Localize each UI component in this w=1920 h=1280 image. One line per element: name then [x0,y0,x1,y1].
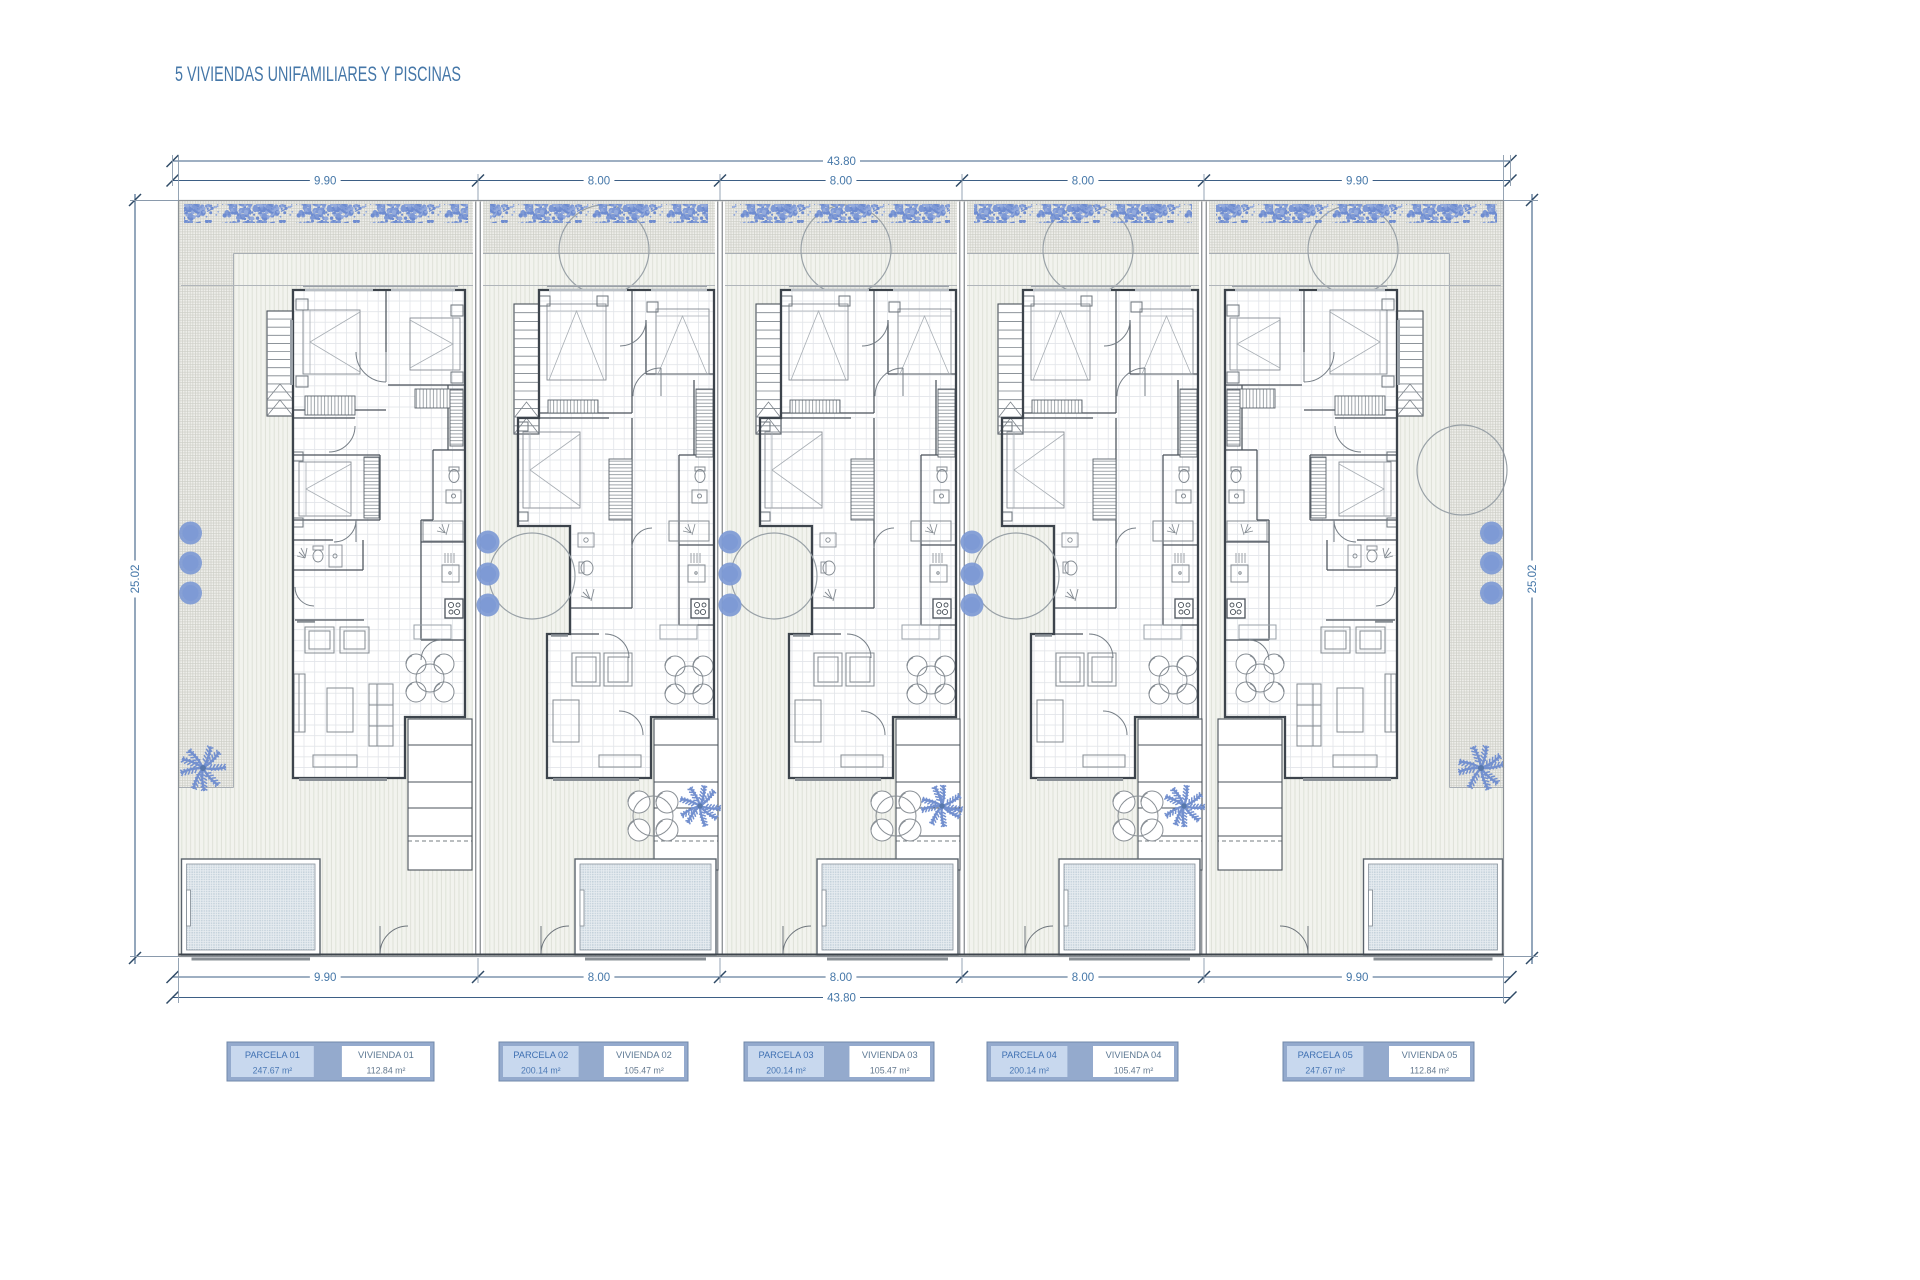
svg-text:105.47 m²: 105.47 m² [624,1066,664,1076]
svg-text:200.14 m²: 200.14 m² [521,1066,561,1076]
svg-text:VIVIENDA 04: VIVIENDA 04 [1106,1050,1162,1060]
svg-text:8.00: 8.00 [588,175,610,187]
svg-text:43.80: 43.80 [827,156,856,168]
svg-text:PARCELA 05: PARCELA 05 [1298,1050,1353,1060]
svg-text:25.02: 25.02 [1527,565,1539,594]
svg-text:43.80: 43.80 [827,992,856,1004]
svg-text:PARCELA 04: PARCELA 04 [1002,1050,1057,1060]
svg-text:8.00: 8.00 [588,972,610,984]
svg-text:8.00: 8.00 [1072,972,1094,984]
svg-text:8.00: 8.00 [830,972,852,984]
svg-text:112.84 m²: 112.84 m² [1410,1066,1449,1076]
svg-text:105.47 m²: 105.47 m² [870,1066,910,1076]
svg-text:VIVIENDA 05: VIVIENDA 05 [1402,1050,1458,1060]
svg-text:247.67 m²: 247.67 m² [253,1066,293,1076]
svg-text:9.90: 9.90 [1346,972,1368,984]
svg-text:5 VIVIENDAS UNIFAMILIARES Y PI: 5 VIVIENDAS UNIFAMILIARES Y PISCINAS [175,62,461,86]
svg-text:25.02: 25.02 [130,565,142,594]
svg-text:VIVIENDA 01: VIVIENDA 01 [358,1050,414,1060]
svg-text:200.14 m²: 200.14 m² [766,1066,806,1076]
svg-text:PARCELA 03: PARCELA 03 [758,1050,813,1060]
svg-text:PARCELA 01: PARCELA 01 [245,1050,300,1060]
svg-text:VIVIENDA 03: VIVIENDA 03 [862,1050,918,1060]
svg-text:9.90: 9.90 [314,175,336,187]
svg-text:8.00: 8.00 [830,175,852,187]
svg-text:112.84 m²: 112.84 m² [366,1066,405,1076]
svg-text:200.14 m²: 200.14 m² [1009,1066,1049,1076]
svg-text:VIVIENDA 02: VIVIENDA 02 [616,1050,672,1060]
svg-text:PARCELA 02: PARCELA 02 [513,1050,568,1060]
svg-text:247.67 m²: 247.67 m² [1305,1066,1345,1076]
svg-text:8.00: 8.00 [1072,175,1094,187]
svg-text:9.90: 9.90 [314,972,336,984]
svg-text:105.47 m²: 105.47 m² [1114,1066,1154,1076]
svg-text:9.90: 9.90 [1346,175,1368,187]
